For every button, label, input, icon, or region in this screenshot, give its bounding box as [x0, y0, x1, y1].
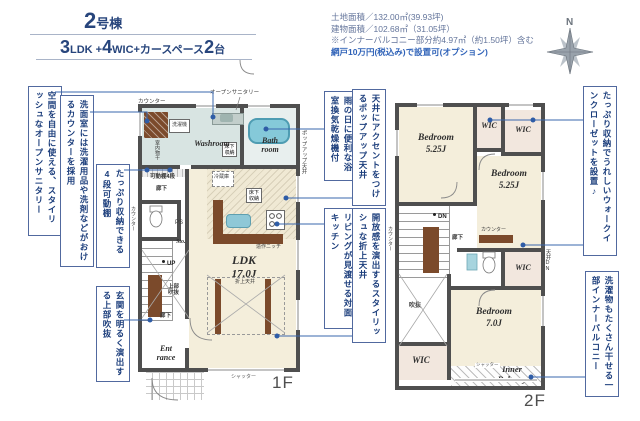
floor-plan-2f: Bedroom 5.25J WIC WIC Bedroom 5.25J カウンタ… [395, 103, 545, 390]
wic-b-label: WIC [505, 125, 541, 134]
callout-wic: たっぷり収納でうれしいウォークインクローゼットを設置♪ [583, 86, 617, 256]
callout-inner-balcony: 洗濯物もたくさん干せる一部インナーバルコニー [585, 271, 619, 397]
open-sanitary-label: オープンサニタリー [210, 90, 259, 96]
movable-shelf-label: 可動棚4段 [150, 174, 175, 180]
callout-open-sanitary: 空間を自由に使える、スタイリッシュなオープンサニタリー [28, 86, 62, 236]
kitchen-sink [226, 214, 251, 228]
screen-option-line: 網戸10万円(税込み)で設置可(オプション) [331, 47, 534, 59]
bedroom3-size: 7.0J [461, 318, 527, 328]
indoor-drying-label: 室内物干 [154, 140, 159, 160]
counter-label-1f-top: カウンター [138, 99, 166, 105]
ldk-name: LDK [220, 254, 268, 268]
balcony-note-line: ※インナーバルコニー部分約4.97㎡（約1.50坪）含む [331, 35, 534, 47]
callout-coffered-ceiling: 開放感を演出するスタイリッシュな折上天井 [352, 208, 386, 343]
wall [142, 200, 181, 204]
bathroom-label: Bath room [246, 136, 294, 154]
fridge-label: 冷蔵庫 [214, 175, 229, 181]
coffered-label: 折上天井 [234, 280, 256, 286]
stove [266, 210, 285, 230]
storage-label: Sto. [176, 239, 186, 246]
bedroom2-label: Bedroom 5.25J [483, 169, 535, 190]
wash-basin [220, 114, 233, 122]
floor-plan-1f: 洗濯機 室内物干 床下収納 Washroom Bath room 可動棚4段 廊… [138, 104, 300, 372]
spec-num-1: 3 [60, 37, 70, 57]
upper-void-line2: 吹抜 [168, 290, 179, 296]
spec-unit-3: 台 [214, 44, 225, 56]
underfloor-storage-kitchen: 床下収納 [246, 188, 262, 203]
washing-machine-label: 洗濯機 [172, 123, 187, 129]
counter-label-2f-left: カウンター [387, 226, 392, 251]
unit-suffix: 号棟 [96, 16, 122, 31]
dn-label: DN [433, 213, 447, 221]
ceiling-beam [265, 279, 271, 334]
compass: N [543, 12, 599, 78]
bedroom2-size: 5.25J [483, 180, 535, 190]
spec-num-3: 2 [204, 37, 214, 57]
kitchen-counter-front [213, 234, 283, 244]
hall-label-2: 廊下 [160, 313, 171, 319]
bedroom2-name: Bedroom [483, 169, 535, 180]
svg-text:N: N [566, 17, 573, 28]
void-label: 吹抜 [409, 303, 421, 310]
ceiling-dn-label: 天井DN [544, 249, 550, 272]
wic-d-label: WIC [399, 355, 443, 365]
callout-movable-shelf: たっぷり収納できる4段可動棚 [96, 164, 130, 268]
shutter-label-1f: シャッター [231, 375, 256, 381]
bedroom1-label: Bedroom 5.25J [407, 133, 465, 154]
spec-unit-2: WIC+カースペース [112, 44, 204, 56]
floor-plan-sheet: 2号棟 3LDK +4WIC+カースペース2台 土地面積／132.00㎡(39.… [0, 0, 640, 421]
stair-wall [148, 275, 162, 317]
ldk-label: LDK 17.0J [220, 254, 268, 280]
callout-laundry-counter: 洗面室には洗濯用品や洗剤などがおけるカウンターを採用 [60, 95, 94, 267]
bedroom1-name: Bedroom [407, 133, 465, 144]
coffered-ceiling: 折上天井 [207, 277, 285, 335]
wic-a-label: WIC [477, 121, 501, 130]
building-area-line: 建物面積／102.68㎡（31.05坪） [331, 24, 534, 36]
inner-balcony-label: Inner Balcony [485, 365, 539, 385]
entrance-line1: Ent [148, 344, 184, 353]
inner-balcony-line2: Balcony [485, 375, 539, 385]
counter-label-1f-left: カウンター [130, 206, 135, 231]
compass-rose-icon: N [543, 12, 599, 78]
niche-label: 造作ニッチ [256, 245, 281, 251]
callout-popup-ceiling: 天井にアクセントをつけるポップアップ天井 [352, 89, 386, 206]
wall [185, 348, 189, 368]
bathroom-label-line2: room [246, 145, 294, 154]
washing-machine: 洗濯機 [169, 119, 190, 133]
entrance-line2: rance [148, 353, 184, 362]
ldk-size: 17.0J [220, 268, 268, 281]
ps-label: PS [175, 220, 183, 227]
entrance-label: Ent rance [148, 344, 184, 362]
callout-entrance-void: 玄関を明るく演出する上部吹抜 [96, 286, 130, 382]
underfloor-storage-label-2: 床下収納 [249, 190, 260, 202]
title-rule-2 [36, 59, 252, 60]
stair-wall-2f [423, 227, 439, 273]
spec-unit-1: LDK + [70, 44, 102, 56]
site-info: 土地面積／132.00㎡(39.93坪) 建物面積／102.68㎡（31.05坪… [331, 12, 534, 58]
spec-num-2: 4 [102, 37, 112, 57]
bedroom3-name: Bedroom [461, 307, 527, 318]
hall-label-1: 廊下 [156, 186, 167, 192]
popup-ceiling-label: ポップアップ天井 [300, 130, 306, 174]
hall-label-2f: 廊下 [452, 235, 463, 241]
laundry-counter [144, 112, 168, 138]
site-area-line: 土地面積／132.00㎡(39.93坪) [331, 12, 534, 24]
unit-title: 2号棟 [84, 8, 122, 34]
wic-c-label: WIC [505, 263, 541, 272]
title-rule-1 [30, 34, 256, 35]
bedroom1-floor [399, 107, 473, 202]
stove-burners-icon [267, 211, 284, 229]
ceiling-beam [215, 279, 221, 334]
up-label: UP [162, 260, 175, 268]
washroom-label: Washroom [188, 139, 236, 148]
upper-void-label: 上部 吹抜 [168, 284, 179, 296]
wall [477, 148, 501, 152]
unit-number: 2 [84, 8, 96, 33]
bedroom1-size: 5.25J [407, 144, 465, 154]
entrance-porch [146, 372, 204, 400]
floor-label-1f: 1F [272, 374, 294, 393]
bedroom3-label: Bedroom 7.0J [461, 307, 527, 328]
floor-label-2f: 2F [524, 392, 546, 411]
counter-label-2f: カウンター [481, 228, 506, 234]
bedroom2-counter [479, 235, 513, 243]
unit-spec: 3LDK +4WIC+カースペース2台 [60, 37, 225, 58]
bathroom-label-line1: Bath [246, 136, 294, 145]
